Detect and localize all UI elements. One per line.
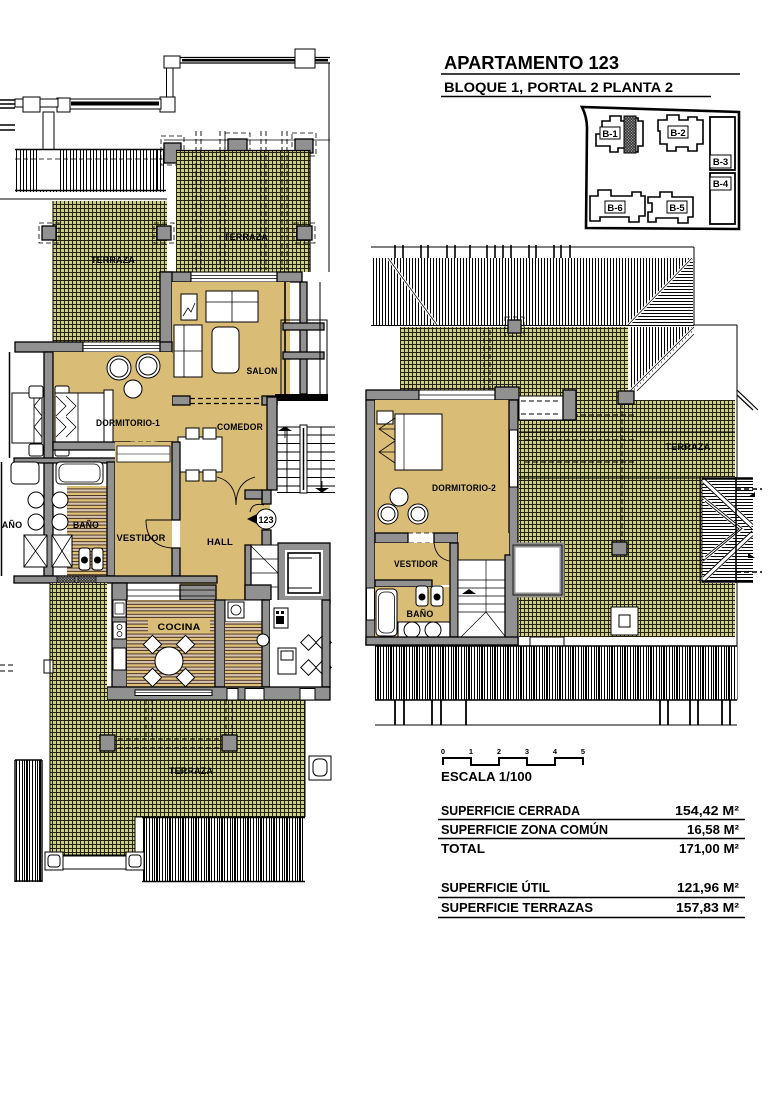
svg-text:SUPERFICIE TERRAZAS: SUPERFICIE TERRAZAS [441, 901, 593, 915]
svg-text:SUPERFICIE ZONA COMÚN: SUPERFICIE ZONA COMÚN [441, 822, 608, 837]
svg-text:121,96 M²: 121,96 M² [677, 881, 739, 895]
svg-text:B-4: B-4 [713, 179, 729, 190]
svg-text:BAÑO: BAÑO [73, 520, 99, 530]
svg-text:TERRAZA: TERRAZA [224, 232, 268, 242]
svg-text:TERRAZA: TERRAZA [169, 766, 213, 776]
svg-text:DORMITORIO-1: DORMITORIO-1 [96, 418, 160, 428]
svg-text:123: 123 [258, 515, 273, 525]
svg-text:16,58 M²: 16,58 M² [687, 823, 739, 837]
svg-text:SUPERFICIE ÚTIL: SUPERFICIE ÚTIL [441, 880, 550, 895]
svg-text:157,83 M²: 157,83 M² [676, 901, 739, 915]
svg-text:3: 3 [525, 747, 529, 756]
svg-text:SALON: SALON [247, 366, 278, 376]
svg-text:BLOQUE 1, PORTAL 2 PLANTA 2: BLOQUE 1, PORTAL 2 PLANTA 2 [444, 80, 673, 95]
svg-text:COCINA: COCINA [158, 622, 201, 632]
svg-text:2: 2 [497, 747, 501, 756]
svg-text:APARTAMENTO 123: APARTAMENTO 123 [444, 53, 619, 73]
svg-text:SUPERFICIE CERRADA: SUPERFICIE CERRADA [441, 804, 580, 818]
svg-text:VESTIDOR: VESTIDOR [394, 559, 438, 569]
svg-text:TOTAL: TOTAL [441, 842, 485, 856]
svg-text:TERRAZA: TERRAZA [91, 255, 135, 265]
svg-text:5: 5 [581, 747, 585, 756]
svg-text:0: 0 [441, 747, 445, 756]
svg-text:B-2: B-2 [670, 128, 685, 139]
svg-text:B-5: B-5 [669, 203, 685, 214]
svg-text:TERRAZA: TERRAZA [666, 442, 711, 452]
svg-text:VESTIDOR: VESTIDOR [117, 533, 166, 543]
svg-text:HALL: HALL [207, 537, 233, 547]
svg-text:1: 1 [469, 747, 473, 756]
svg-text:ESCALA 1/100: ESCALA 1/100 [441, 769, 532, 784]
svg-text:B-3: B-3 [713, 157, 728, 168]
svg-text:B-6: B-6 [607, 203, 622, 214]
svg-text:DORMITORIO-2: DORMITORIO-2 [432, 483, 496, 493]
svg-text:AÑO: AÑO [2, 520, 23, 530]
svg-text:BAÑO: BAÑO [407, 609, 434, 619]
svg-text:171,00 M²: 171,00 M² [679, 842, 739, 856]
svg-text:COMEDOR: COMEDOR [217, 422, 263, 432]
svg-text:B-1: B-1 [602, 129, 618, 140]
svg-text:154,42 M²: 154,42 M² [675, 804, 739, 818]
